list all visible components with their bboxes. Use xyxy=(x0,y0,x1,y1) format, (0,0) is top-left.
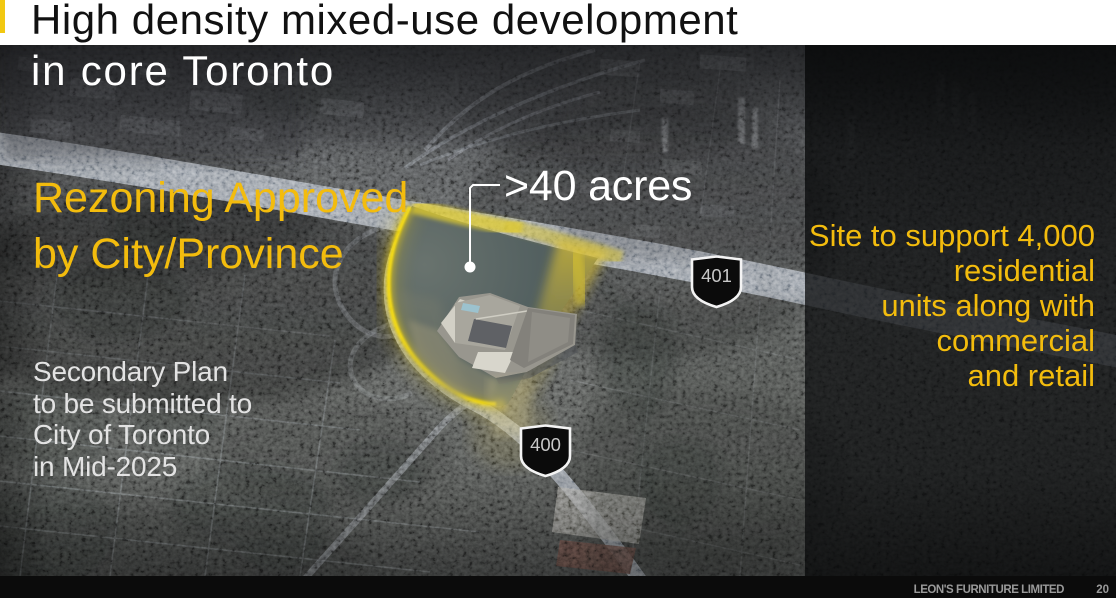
svg-text:401: 401 xyxy=(701,265,732,286)
svg-text:400: 400 xyxy=(530,434,561,455)
